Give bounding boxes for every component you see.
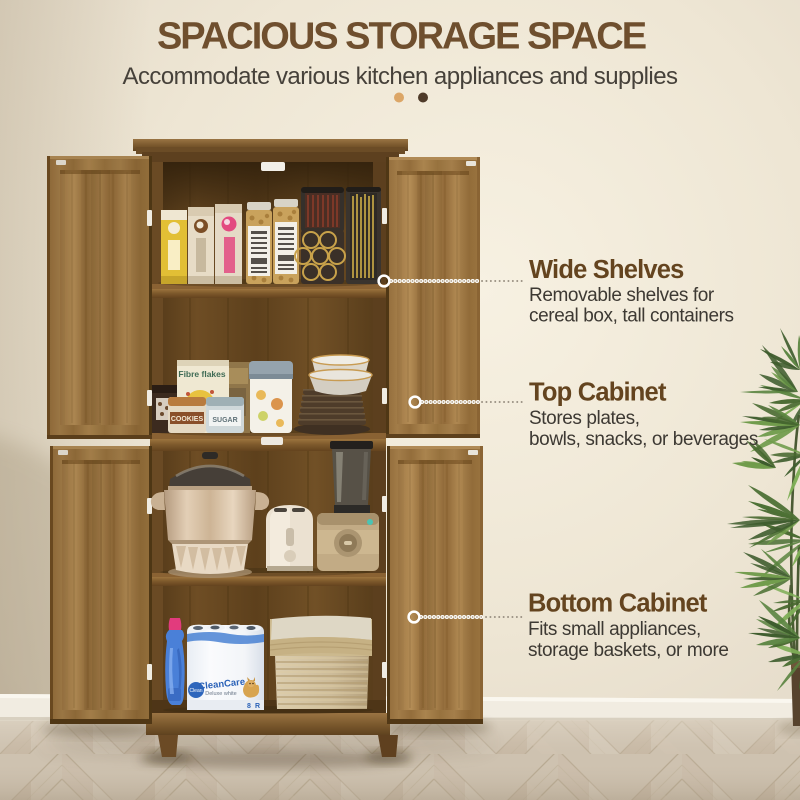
svg-text:Fibre flakes: Fibre flakes bbox=[178, 369, 226, 379]
svg-text:Bottom Cabinet: Bottom Cabinet bbox=[528, 590, 708, 618]
svg-text:8: 8 bbox=[247, 703, 251, 710]
svg-text:Stores plates,: Stores plates, bbox=[529, 408, 640, 429]
svg-text:bowls, snacks, or beverages: bowls, snacks, or beverages bbox=[529, 429, 758, 450]
svg-text:SUGAR: SUGAR bbox=[212, 417, 237, 424]
svg-text:Removable shelves for: Removable shelves for bbox=[529, 285, 715, 306]
svg-text:COOKIES: COOKIES bbox=[171, 416, 204, 423]
svg-text:Accommodate various kitchen ap: Accommodate various kitchen appliances a… bbox=[123, 63, 678, 90]
svg-text:Wide Shelves: Wide Shelves bbox=[529, 256, 684, 284]
svg-text:Deluxe white: Deluxe white bbox=[205, 691, 237, 697]
svg-text:Top Cabinet: Top Cabinet bbox=[529, 379, 667, 407]
svg-text:cereal box, tall containers: cereal box, tall containers bbox=[529, 306, 734, 327]
svg-text:R: R bbox=[255, 703, 260, 710]
svg-text:SPACIOUS STORAGE SPACE: SPACIOUS STORAGE SPACE bbox=[157, 16, 646, 58]
svg-text:Fits small appliances,: Fits small appliances, bbox=[528, 619, 701, 640]
svg-text:storage baskets, or more: storage baskets, or more bbox=[528, 640, 729, 661]
